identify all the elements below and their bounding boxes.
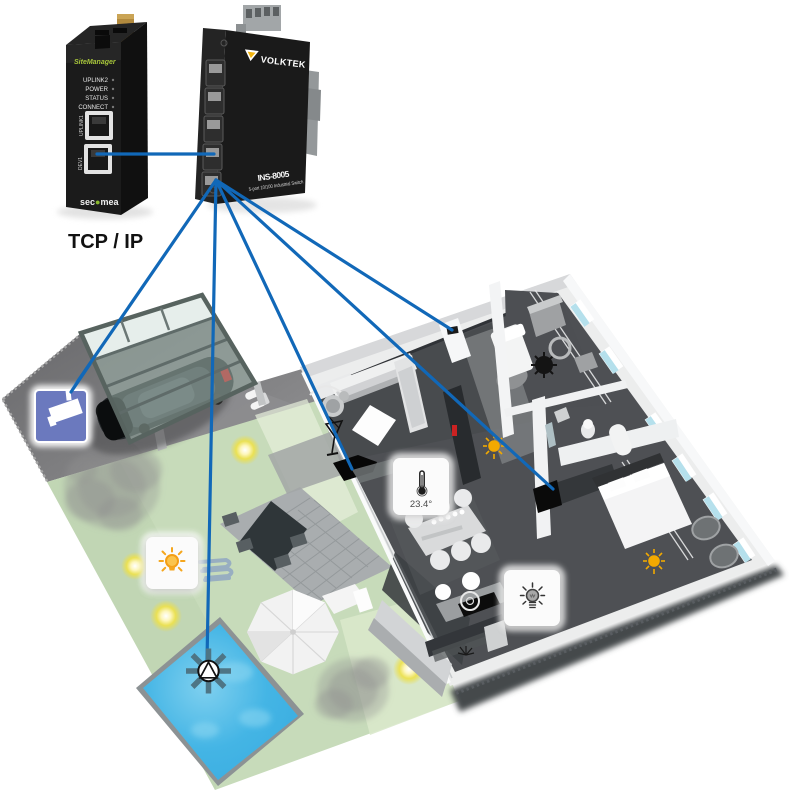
svg-text:STATUS: STATUS: [85, 96, 108, 102]
svg-text:SiteManager: SiteManager: [74, 59, 117, 66]
svg-text:DEV1: DEV1: [78, 157, 84, 170]
svg-text:UPLINK1: UPLINK1: [79, 115, 85, 136]
svg-text:UPLINK2: UPLINK2: [83, 78, 109, 84]
svg-text:sec●mea: sec●mea: [80, 197, 119, 207]
svg-text:CONNECT: CONNECT: [78, 105, 108, 111]
svg-text:TCP / IP: TCP / IP: [68, 231, 143, 253]
svg-text:POWER: POWER: [85, 87, 108, 93]
svg-text:23.4°: 23.4°: [410, 499, 432, 510]
